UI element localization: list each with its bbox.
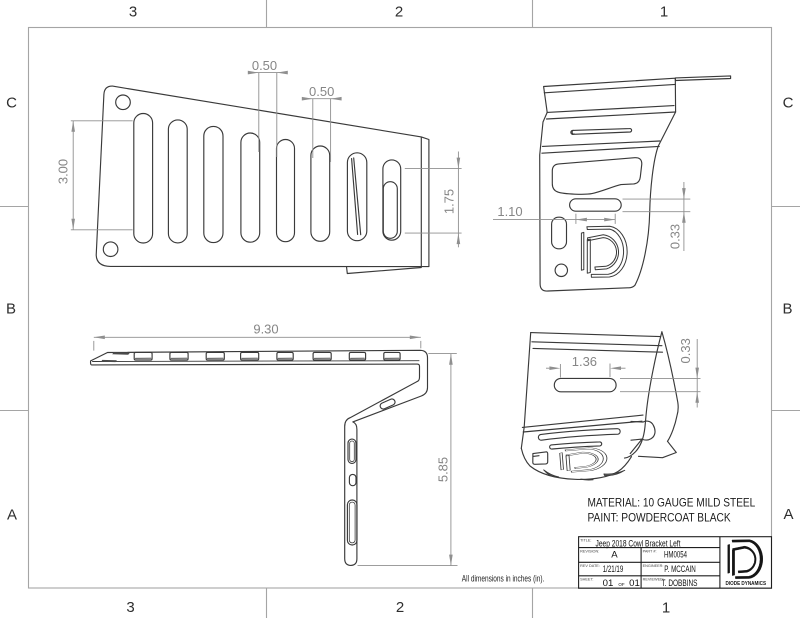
svg-text:01: 01	[629, 578, 640, 589]
svg-text:T. DOBBINS: T. DOBBINS	[662, 578, 698, 589]
svg-text:0.33: 0.33	[668, 224, 683, 249]
svg-text:3: 3	[126, 599, 134, 616]
svg-text:0.50: 0.50	[309, 84, 334, 99]
svg-text:5.85: 5.85	[435, 457, 450, 482]
svg-text:0.33: 0.33	[678, 338, 693, 363]
svg-text:ENGINEER:: ENGINEER:	[643, 564, 664, 568]
svg-text:A: A	[783, 506, 793, 523]
svg-text:B: B	[782, 301, 792, 318]
svg-text:2: 2	[396, 599, 404, 616]
svg-text:1/21/19: 1/21/19	[603, 564, 624, 575]
svg-text:0.50: 0.50	[252, 58, 277, 73]
svg-text:B: B	[6, 301, 16, 318]
svg-text:1: 1	[660, 4, 668, 21]
svg-text:2: 2	[395, 4, 403, 21]
svg-text:3.00: 3.00	[55, 159, 70, 184]
svg-text:TITLE:: TITLE:	[580, 538, 591, 542]
svg-text:PART #:: PART #:	[643, 549, 657, 553]
svg-text:REV DATE:: REV DATE:	[580, 564, 600, 568]
svg-text:3: 3	[129, 4, 137, 21]
svg-text:MATERIAL: 10 GAUGE MILD STEEL: MATERIAL: 10 GAUGE MILD STEEL	[588, 496, 756, 510]
svg-text:OF: OF	[618, 582, 625, 587]
svg-text:HM0054: HM0054	[664, 550, 687, 561]
svg-text:SHEET:: SHEET:	[580, 577, 593, 581]
svg-text:PAINT: POWDERCOAT BLACK: PAINT: POWDERCOAT BLACK	[588, 511, 731, 525]
svg-text:1.10: 1.10	[497, 204, 522, 219]
svg-text:01: 01	[603, 578, 614, 589]
svg-text:1: 1	[662, 600, 670, 617]
svg-text:DIODE DYNAMICS: DIODE DYNAMICS	[726, 581, 767, 587]
svg-text:C: C	[783, 95, 794, 112]
svg-text:REVISION:: REVISION:	[580, 549, 599, 553]
svg-text:All dimensions in inches (in).: All dimensions in inches (in).	[462, 574, 545, 585]
svg-text:A: A	[611, 550, 618, 561]
svg-text:P. MCCAIN: P. MCCAIN	[664, 564, 696, 575]
svg-text:Jeep 2018 Cowl Bracket Left: Jeep 2018 Cowl Bracket Left	[596, 538, 681, 549]
svg-text:C: C	[6, 95, 17, 112]
svg-text:A: A	[7, 507, 17, 524]
svg-text:1.75: 1.75	[442, 189, 457, 214]
svg-text:9.30: 9.30	[253, 322, 278, 337]
svg-text:1.36: 1.36	[572, 354, 597, 369]
